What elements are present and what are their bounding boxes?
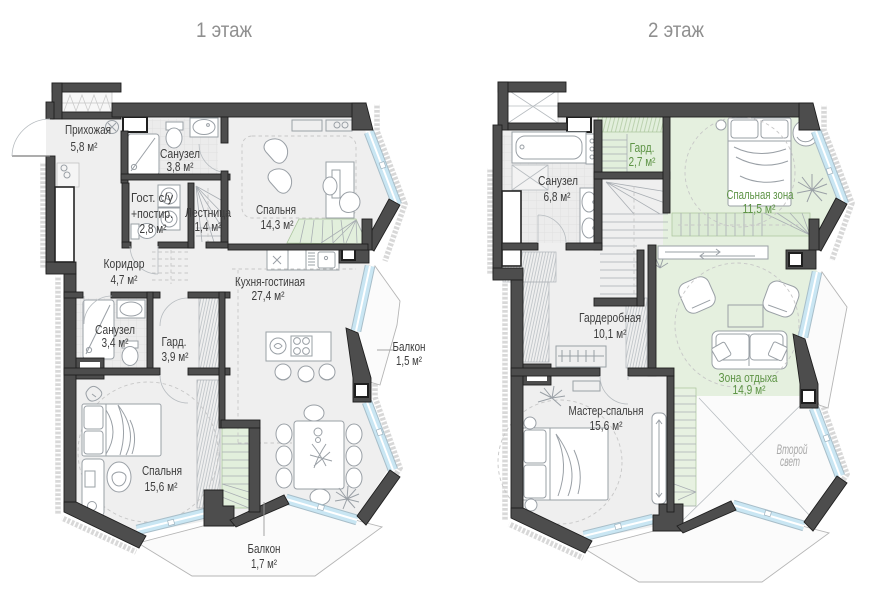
svg-text:Прихожая: Прихожая xyxy=(65,122,111,137)
svg-text:10,1 м²: 10,1 м² xyxy=(594,326,628,341)
svg-text:14,9 м²: 14,9 м² xyxy=(733,382,767,397)
svg-text:1 этаж: 1 этаж xyxy=(196,19,252,42)
svg-text:Коридор: Коридор xyxy=(104,256,145,271)
svg-text:Гардеробная: Гардеробная xyxy=(579,310,641,325)
svg-text:2,8 м²: 2,8 м² xyxy=(140,221,168,236)
svg-text:Мастер-спальня: Мастер-спальня xyxy=(569,403,644,418)
svg-text:4,7 м²: 4,7 м² xyxy=(111,272,139,287)
svg-text:Санузел: Санузел xyxy=(538,173,578,188)
svg-text:2,7 м²: 2,7 м² xyxy=(629,154,657,169)
svg-text:14,3 м²: 14,3 м² xyxy=(261,217,295,232)
svg-text:+постир.: +постир. xyxy=(131,206,173,221)
svg-text:Спальная зона: Спальная зона xyxy=(727,187,795,202)
svg-text:Гост. с/у: Гост. с/у xyxy=(131,190,173,205)
svg-text:15,6 м²: 15,6 м² xyxy=(145,479,179,494)
svg-text:Гард.: Гард. xyxy=(162,334,187,349)
svg-text:1,5 м²: 1,5 м² xyxy=(396,353,422,368)
svg-text:3,4 м²: 3,4 м² xyxy=(102,335,130,350)
svg-text:Спальня: Спальня xyxy=(256,202,296,217)
svg-text:Кухня-гостиная: Кухня-гостиная xyxy=(235,274,305,289)
svg-text:2 этаж: 2 этаж xyxy=(648,19,704,42)
svg-text:3,8 м²: 3,8 м² xyxy=(167,159,195,174)
svg-text:6,8 м²: 6,8 м² xyxy=(544,189,572,204)
svg-text:1,7 м²: 1,7 м² xyxy=(251,556,277,571)
svg-text:27,4 м²: 27,4 м² xyxy=(252,288,286,303)
svg-text:5,8 м²: 5,8 м² xyxy=(71,139,99,154)
svg-text:Балкон: Балкон xyxy=(393,339,426,354)
svg-text:свет: свет xyxy=(780,454,800,469)
svg-text:11,5 м²: 11,5 м² xyxy=(743,201,777,216)
svg-text:Гард.: Гард. xyxy=(630,140,655,155)
svg-text:Балкон: Балкон xyxy=(248,541,281,556)
svg-text:1,4 м²: 1,4 м² xyxy=(195,219,223,234)
svg-text:Спальня: Спальня xyxy=(142,463,182,478)
svg-text:3,9 м²: 3,9 м² xyxy=(162,349,190,364)
svg-text:Лестница: Лестница xyxy=(185,205,232,220)
svg-text:15,6 м²: 15,6 м² xyxy=(590,418,624,433)
